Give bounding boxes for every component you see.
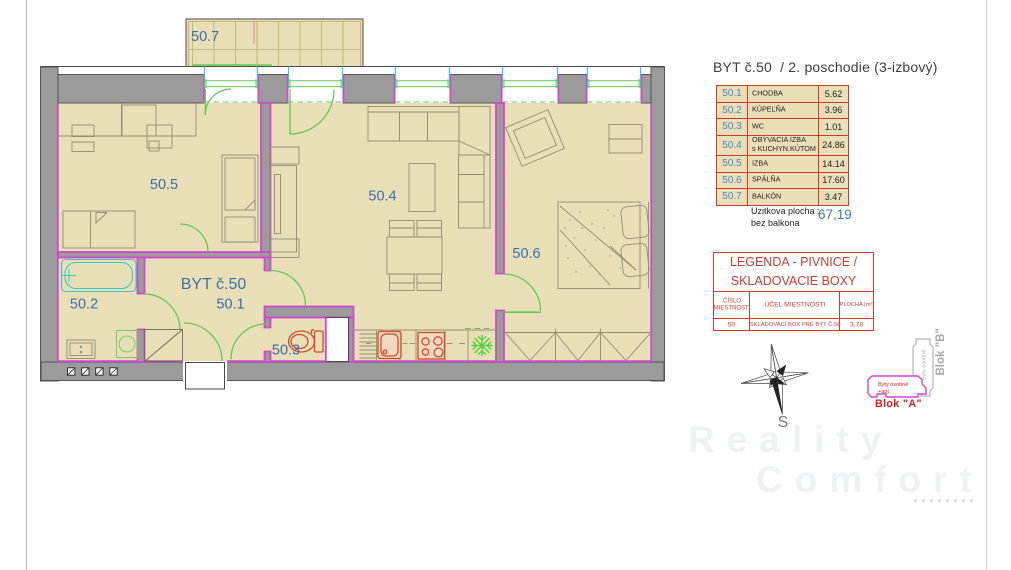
svg-text:Blok "B": Blok "B" xyxy=(935,328,947,375)
svg-text:BYT č.50: BYT č.50 xyxy=(181,276,247,293)
svg-text:50.6: 50.6 xyxy=(512,246,540,262)
svg-text:+apt: +apt xyxy=(878,389,889,395)
svg-text:50.7: 50.7 xyxy=(191,29,219,45)
svg-text:50.4: 50.4 xyxy=(368,189,396,205)
svg-text:50.3: 50.3 xyxy=(272,343,300,359)
svg-text:50.5: 50.5 xyxy=(150,177,178,193)
svg-text:50.2: 50.2 xyxy=(70,297,98,313)
svg-text:S: S xyxy=(778,414,789,431)
svg-text:50.1: 50.1 xyxy=(216,297,244,313)
svg-text:Byty osobné: Byty osobné xyxy=(922,350,928,380)
svg-text:Byty osobné: Byty osobné xyxy=(878,382,908,388)
